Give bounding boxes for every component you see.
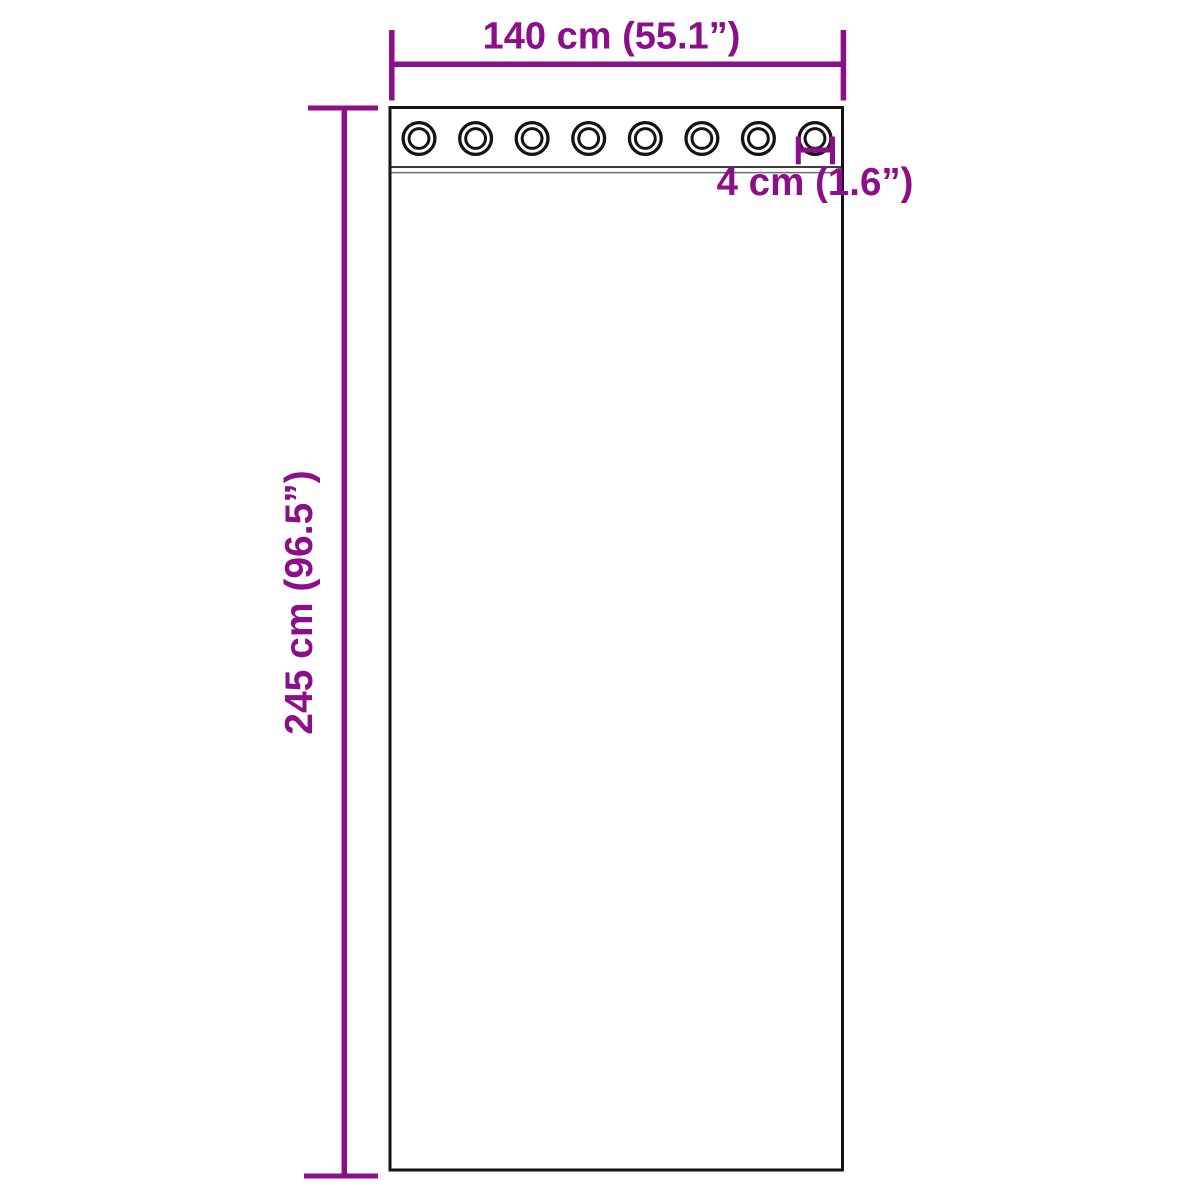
svg-text:4 cm (1.6”): 4 cm (1.6”) <box>717 161 914 204</box>
svg-text:245 cm (96.5”): 245 cm (96.5”) <box>278 470 321 735</box>
svg-text:140 cm (55.1”): 140 cm (55.1”) <box>483 16 741 58</box>
